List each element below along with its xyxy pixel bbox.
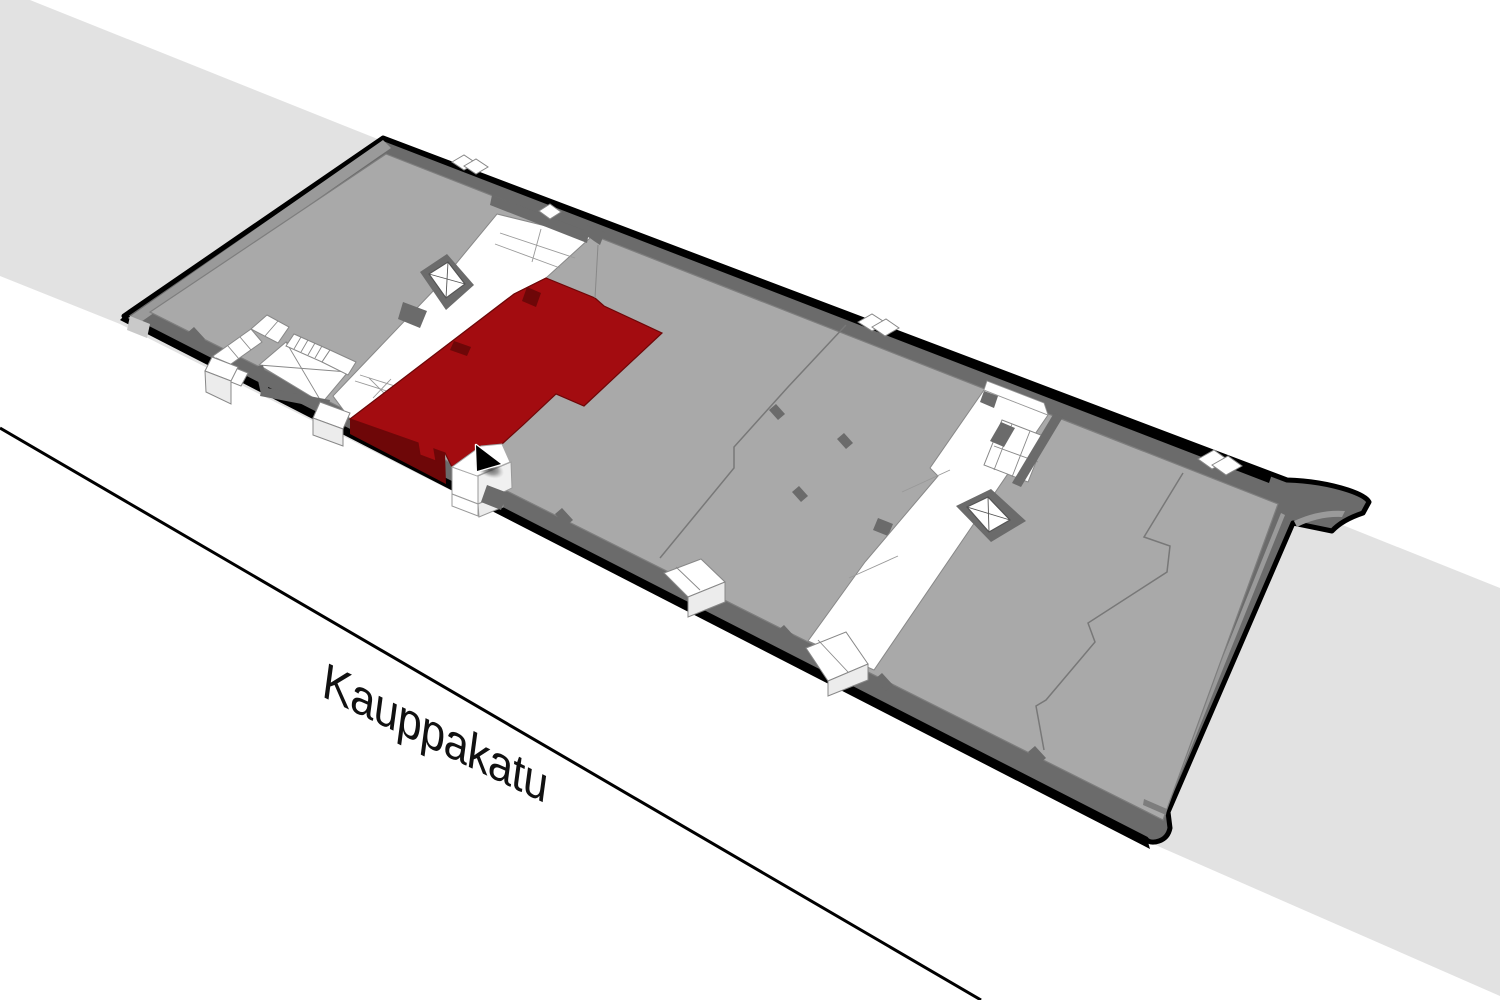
svg-text:Kauppakatu: Kauppakatu <box>320 652 551 814</box>
